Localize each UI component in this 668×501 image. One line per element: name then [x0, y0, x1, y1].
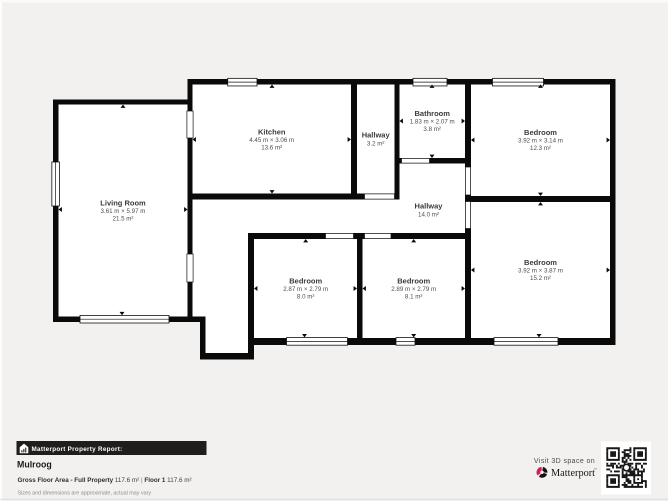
svg-text:8.1 m²: 8.1 m²: [405, 294, 423, 301]
svg-text:Hallway: Hallway: [415, 201, 444, 210]
svg-text:Gross Floor Area - Full Proper: Gross Floor Area - Full Property 117.6 m…: [18, 477, 192, 484]
svg-text:Mulroog: Mulroog: [17, 459, 52, 469]
svg-text:Bedroom: Bedroom: [397, 276, 430, 285]
svg-text:12.3 m²: 12.3 m²: [530, 145, 551, 152]
svg-text:Bedroom: Bedroom: [524, 258, 557, 267]
svg-text:Hallway: Hallway: [362, 130, 391, 139]
svg-text:3.61 m × 5.97 m: 3.61 m × 5.97 m: [101, 208, 146, 215]
svg-text:3.92 m × 3.14 m: 3.92 m × 3.14 m: [518, 137, 563, 144]
svg-text:14.0 m²: 14.0 m²: [418, 212, 439, 219]
svg-text:8.0 m²: 8.0 m²: [297, 294, 315, 301]
svg-text:Kitchen: Kitchen: [258, 127, 286, 136]
svg-text:Sizes and dimensions are appro: Sizes and dimensions are approximate, ac…: [18, 491, 152, 497]
svg-text:Matterport: Matterport: [551, 468, 595, 479]
svg-text:3.2 m²: 3.2 m²: [367, 141, 385, 148]
svg-text:Bedroom: Bedroom: [289, 276, 322, 285]
svg-text:2.87 m × 2.79 m: 2.87 m × 2.79 m: [283, 286, 328, 293]
svg-text:™: ™: [594, 468, 597, 472]
svg-text:21.5 m²: 21.5 m²: [113, 216, 134, 223]
svg-text:4.45 m × 3.06 m: 4.45 m × 3.06 m: [249, 137, 294, 144]
svg-text:1.83 m × 2.07 m: 1.83 m × 2.07 m: [410, 118, 455, 125]
svg-text:3.8 m²: 3.8 m²: [423, 126, 441, 133]
svg-text:13.6 m²: 13.6 m²: [261, 145, 282, 152]
svg-text:15.2 m²: 15.2 m²: [530, 275, 551, 282]
svg-text:Visit 3D space on: Visit 3D space on: [534, 458, 595, 465]
svg-text:2.89 m × 2.79 m: 2.89 m × 2.79 m: [391, 286, 436, 293]
svg-text:Living Room: Living Room: [100, 198, 146, 207]
svg-text:Matterport Property Report:: Matterport Property Report:: [32, 446, 123, 453]
svg-text:Bedroom: Bedroom: [524, 128, 557, 137]
svg-text:Bathroom: Bathroom: [414, 109, 450, 118]
svg-text:3.92 m × 3.87 m: 3.92 m × 3.87 m: [518, 267, 563, 274]
